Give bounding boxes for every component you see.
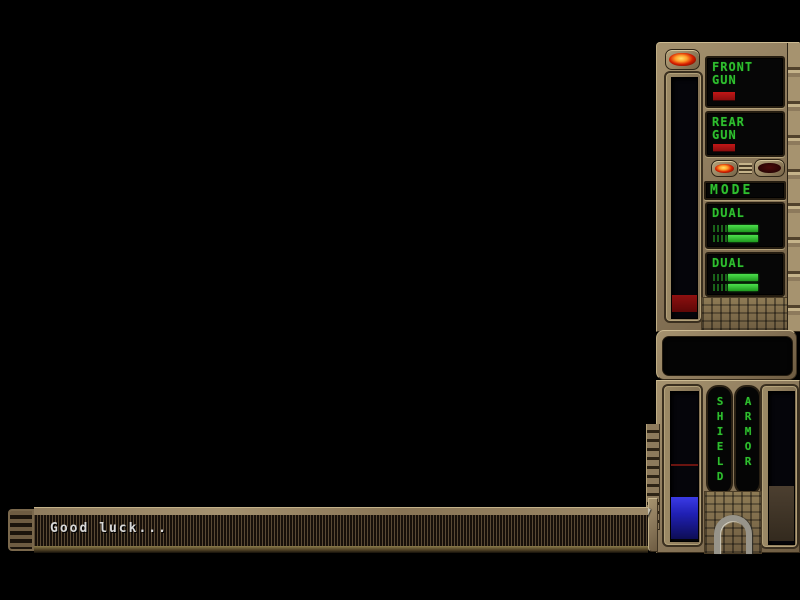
- dual-bottom-meter-row-1: [713, 274, 758, 281]
- armor-bar-track: [768, 391, 795, 545]
- front-gun-label-line2: GUN: [707, 74, 783, 87]
- meter-ticks: [713, 235, 727, 242]
- mode-light-right: [754, 159, 785, 177]
- mode-light-right-bulb: [758, 163, 781, 173]
- meter-beam: [728, 284, 758, 291]
- message-bar: Good luck...: [8, 507, 658, 553]
- dual-meter-bottom: DUAL: [705, 252, 785, 297]
- comm-display-frame: [656, 330, 797, 380]
- meter-beam: [728, 235, 758, 242]
- dual-top-meter-row-1: [713, 225, 758, 232]
- mode-light-connector: [739, 163, 752, 174]
- message-bar-bottom-trim: [34, 546, 648, 553]
- mode-light-left: [711, 160, 738, 177]
- message-bar-body: Good luck...: [34, 507, 648, 553]
- comm-display: [662, 336, 793, 376]
- armor-label: ARMOR: [742, 395, 754, 470]
- weapon-panel: FRONT GUN REAR GUN MODE DUAL: [656, 42, 800, 332]
- dual-bottom-meter-row-2: [713, 284, 758, 291]
- message-bar-top-trim: [34, 507, 648, 515]
- shield-label: SHIELD: [714, 395, 726, 485]
- front-gun-display: FRONT GUN: [705, 56, 785, 108]
- weapon-energy-fill: [672, 295, 697, 312]
- armor-bar: [760, 384, 799, 549]
- front-gun-label-line1: FRONT: [707, 58, 783, 74]
- mode-display: MODE: [704, 181, 786, 200]
- meter-beam: [728, 225, 758, 232]
- meter-ticks: [713, 284, 727, 291]
- front-gun-ammo-bar: [713, 92, 735, 100]
- power-light: [665, 49, 700, 70]
- weapon-energy-bar-track: [671, 77, 698, 319]
- weapon-energy-bar: [664, 71, 703, 323]
- dual-top-meter-row-2: [713, 235, 758, 242]
- mode-light-left-bulb: [715, 164, 734, 173]
- circuit-detail-top: [701, 297, 799, 331]
- rear-gun-label-line1: REAR: [707, 113, 783, 129]
- armor-label-column: ARMOR: [734, 385, 761, 495]
- rear-gun-label-line2: GUN: [707, 129, 783, 142]
- dual-meter-top: DUAL: [705, 202, 785, 249]
- meter-ticks: [713, 274, 727, 281]
- armor-fill: [769, 486, 794, 541]
- rear-gun-display: REAR GUN: [705, 111, 785, 157]
- panel-rail: [787, 43, 800, 331]
- message-bar-left-cap: [8, 509, 34, 551]
- power-light-bulb: [669, 53, 696, 66]
- status-panel: SHIELD ARMOR: [656, 380, 800, 553]
- pipe-arch: [714, 515, 752, 554]
- meter-ticks: [713, 225, 727, 232]
- rear-gun-ammo-bar: [713, 144, 735, 151]
- meter-beam: [728, 274, 758, 281]
- game-screen: FRONT GUN REAR GUN MODE DUAL: [0, 0, 800, 600]
- shield-fill: [671, 497, 698, 539]
- message-text: Good luck...: [50, 521, 168, 536]
- shield-bar: [662, 384, 703, 547]
- dual-top-label: DUAL: [707, 204, 783, 220]
- shield-bar-track: [670, 391, 699, 542]
- mode-label: MODE: [706, 183, 784, 198]
- dual-bottom-label: DUAL: [707, 254, 783, 270]
- shield-threshold-line: [671, 464, 698, 466]
- shield-label-column: SHIELD: [706, 385, 733, 495]
